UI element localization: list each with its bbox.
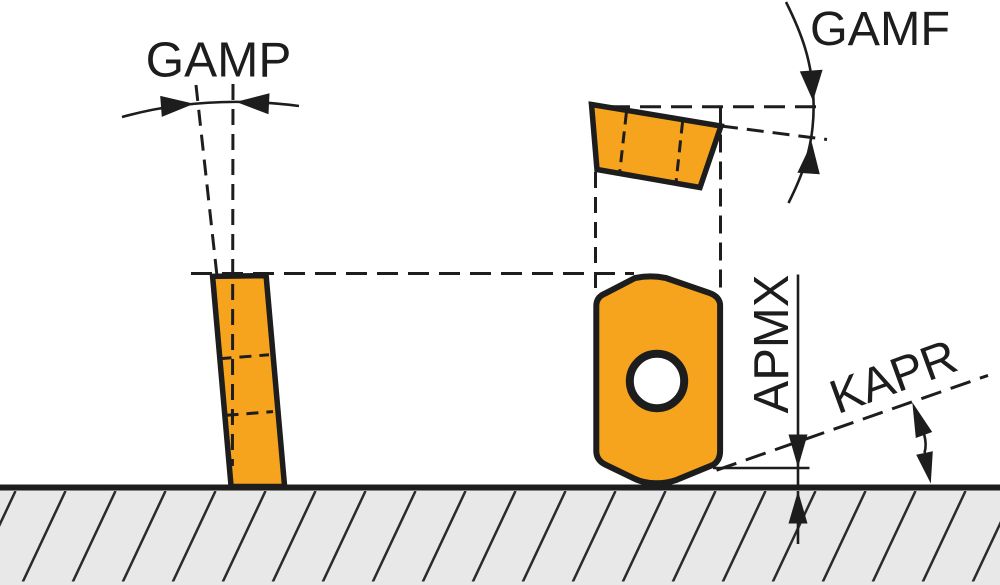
svg-text:GAMF: GAMF <box>810 2 950 56</box>
svg-text:APMX: APMX <box>745 275 799 414</box>
svg-text:GAMP: GAMP <box>146 33 292 88</box>
